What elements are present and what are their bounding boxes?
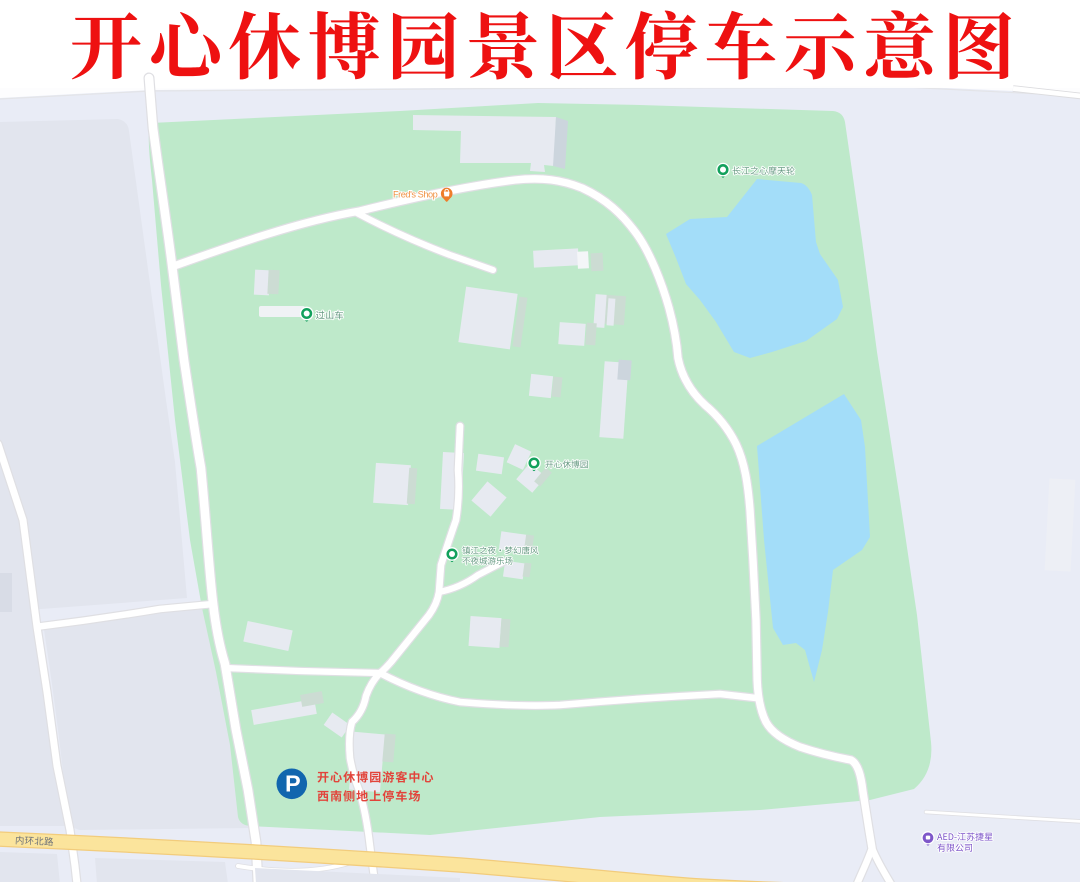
svg-text:P: P: [285, 771, 301, 797]
svg-text:Fred's Shop: Fred's Shop: [393, 190, 438, 200]
